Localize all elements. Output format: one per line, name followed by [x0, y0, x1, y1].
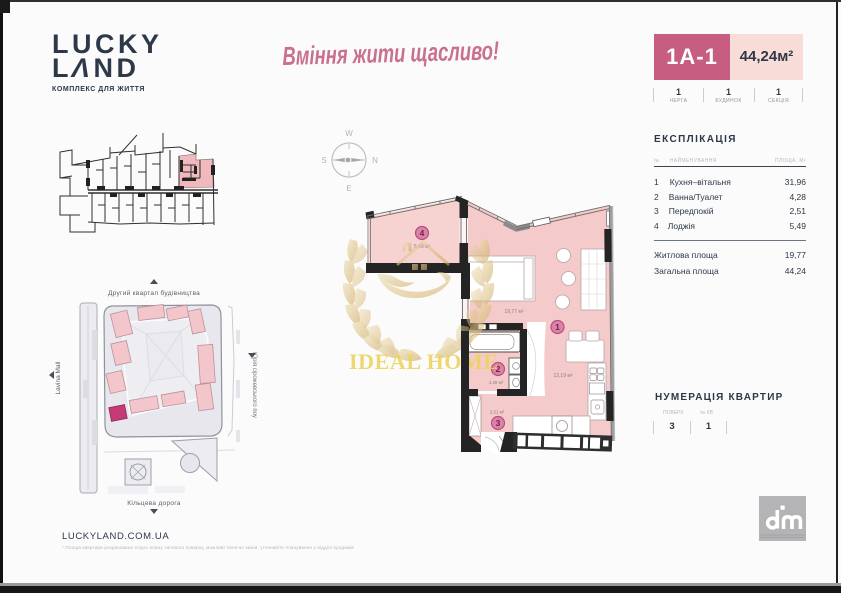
svg-text:1: 1	[555, 322, 560, 332]
svg-text:19,77 м²: 19,77 м²	[504, 309, 523, 315]
svg-text:S: S	[321, 156, 326, 165]
svg-text:4,28 м²: 4,28 м²	[489, 380, 504, 385]
svg-text:Lavina Mall: Lavina Mall	[55, 361, 62, 394]
svg-text:IDEAL HOME: IDEAL HOME	[349, 349, 499, 374]
svg-text:Кільцева дорога: Кільцева дорога	[127, 499, 181, 507]
svg-text:Юрія сірожевського поу: Юрія сірожевського поу	[251, 352, 257, 418]
svg-text:2,51 м²: 2,51 м²	[490, 410, 505, 415]
svg-text:12,19 м²: 12,19 м²	[553, 373, 572, 379]
svg-text:W: W	[345, 129, 353, 138]
svg-text:4: 4	[420, 228, 425, 238]
svg-text:Другий квартал будівництва: Другий квартал будівництва	[108, 289, 200, 297]
svg-text:3: 3	[496, 418, 501, 428]
svg-text:N: N	[372, 156, 378, 165]
